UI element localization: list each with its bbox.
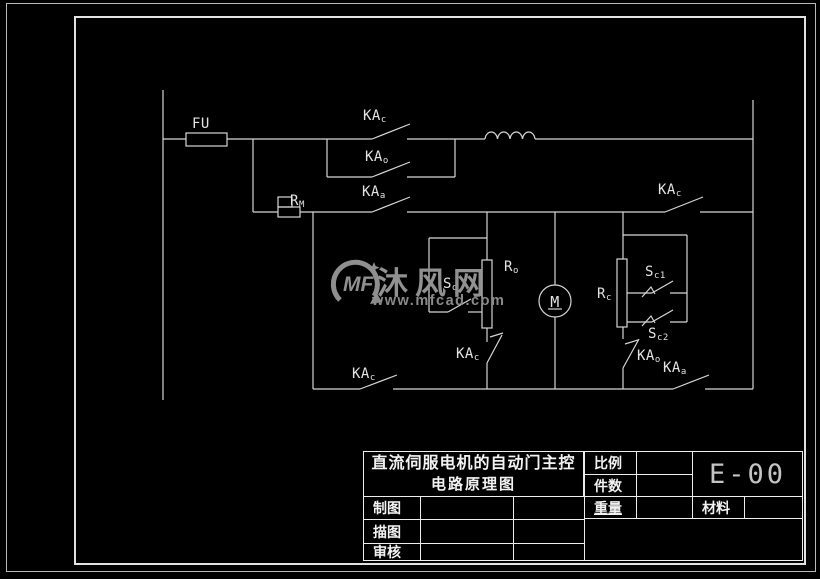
switch-c2-label: Sc2: [648, 326, 669, 343]
drawing-number: E-00: [692, 451, 803, 497]
relay-close-right-label: KAc: [658, 182, 682, 199]
notes-cell: [584, 518, 803, 561]
relay-stop-bottom-label: KAa: [663, 360, 687, 377]
fuse-label: FU: [192, 116, 210, 132]
checked-label: 审核: [363, 543, 421, 561]
material-value-cell: [744, 496, 803, 519]
fuse-symbol: [186, 133, 227, 146]
switch-sc2-blade: [652, 310, 673, 322]
motor-label: M: [550, 293, 560, 311]
inductor-symbol: [485, 132, 535, 139]
quantity-label: 件数: [584, 474, 637, 497]
relay-close-mid-label: KAc: [456, 346, 480, 363]
title-cell: 直流伺服电机的自动门主控 电路原理图: [363, 451, 584, 497]
switch-kac-top-blade: [372, 124, 410, 139]
drafted-name-cell: [420, 496, 514, 520]
checked-name-cell: [420, 543, 514, 561]
traced-name-cell: [420, 519, 514, 544]
drafted-label: 制图: [363, 496, 421, 520]
relay-close-bottom-label: KAc: [352, 366, 376, 383]
switch-c1-label: Sc1: [645, 264, 666, 281]
drafted-date-cell: [513, 496, 585, 520]
scale-value-cell: [636, 451, 693, 475]
relay-open-top-label: KAo: [365, 149, 389, 166]
checked-date-cell: [513, 543, 585, 561]
switch-sc1-blade: [652, 281, 673, 293]
resistor-m-label: RM: [290, 193, 305, 210]
quantity-value-cell: [636, 474, 693, 497]
watermark-logo-text: MF: [343, 273, 374, 296]
title-block: 直流伺服电机的自动门主控 电路原理图 比例 件数 E-00 制图 重量 材料 描…: [363, 451, 803, 561]
switch-kac-mid-blade: [487, 335, 502, 363]
relay-stop-top-label: KAa: [362, 184, 386, 201]
drawing-title-line1: 直流伺服电机的自动门主控: [371, 453, 575, 475]
switch-kaa-bottom-blade: [673, 375, 709, 389]
weight-label: 重量: [584, 496, 637, 519]
traced-label: 描图: [363, 519, 421, 544]
scale-label: 比例: [584, 451, 637, 475]
relay-open-low-label: KAo: [637, 348, 661, 365]
resistor-o-label: Ro: [504, 259, 519, 276]
switch-kac-right-blade: [665, 197, 703, 212]
relay-close-top-label: KAc: [363, 108, 387, 125]
drawing-title-line2: 电路原理图: [431, 475, 516, 495]
resistor-c-label: Rc: [597, 286, 612, 303]
resistor-c-symbol: [617, 259, 627, 327]
drawing-sheet: FU KAc KAo KAa RM KAc So Ro M Rc Sc1 Sc2…: [0, 0, 820, 579]
material-label: 材料: [692, 496, 745, 519]
weight-label-text: 重量: [594, 498, 622, 518]
traced-date-cell: [513, 519, 585, 544]
weight-value-cell: [636, 496, 693, 519]
watermark-url: www.mfcad.com: [372, 293, 505, 309]
